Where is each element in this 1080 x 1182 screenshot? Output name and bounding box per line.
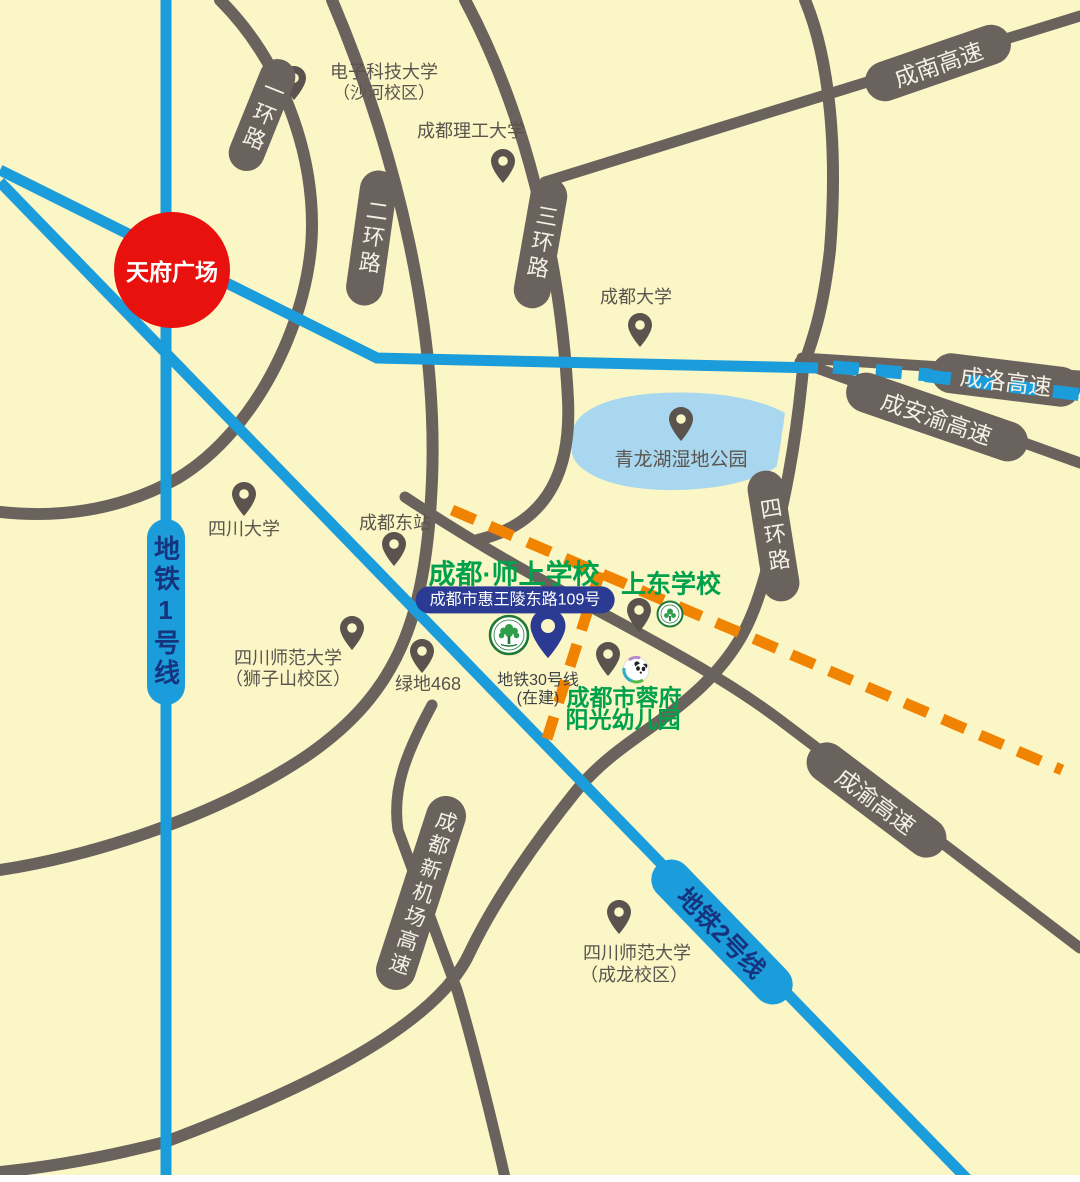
pin-featured-school [531,609,566,659]
poi-cdut-name: 成都理工大学 [417,122,525,140]
poi-sicnu-chenglong-name: 四川师范大学 [583,944,691,962]
pin-sichuan-university [232,482,256,516]
tianfu-square-label: 天府广场 [126,253,218,287]
road-ring-2 [0,0,433,870]
ring2-road-label: 二环路 [350,197,393,279]
qinglong-lake-label: 青龙湖湿地公园 [614,451,747,470]
metro-line1-pill: 地铁1号线 [147,519,185,705]
shangdong-logo-icon [658,602,683,627]
pin-sicnu-shizishan [340,616,364,650]
chengluo-expressway-label: 成洛高速 [958,358,1053,403]
poi-sicnu-branch: （狮子山校区） [225,670,351,688]
poi-sicnu-chenglong-branch: （成龙校区） [580,966,688,984]
metro-line30-status: (在建) [517,684,560,708]
pin-chengdu-east-station [382,532,406,566]
pin-sicnu-chenglong [607,900,631,934]
shangdong-school-name: 上东学校 [621,573,721,598]
map-canvas: 一环路 二环路 三环路 四环路 成南高速 成洛高速 成安渝高速 成渝高速 成都新… [0,0,1080,1182]
poi-uestc-name: 电子科技大学 [330,63,438,81]
featured-school-name: 成都·师上学校 [429,562,600,589]
poi-greenland-468-name: 绿地468 [395,675,461,693]
metro-line1-label: 地铁1号线 [148,535,185,689]
pin-cdut [491,149,515,183]
poi-sicnu-name: 四川师范大学 [234,649,342,667]
school-logo-icon [490,616,528,654]
pin-chengdu-university [628,313,652,347]
bottom-border [0,1175,1080,1182]
poi-chengdu-university-name: 成都大学 [600,288,672,306]
pin-greenland-468 [410,639,434,673]
panda-logo-icon [623,657,649,683]
poi-sichuan-university-name: 四川大学 [208,520,280,538]
poi-chengdu-east-station-name: 成都东站 [359,514,431,532]
poi-uestc-branch: （沙河校区） [333,85,435,102]
pin-kindergarten [596,642,620,676]
kindergarten-name-line2: 阳光幼儿园 [566,709,681,732]
featured-school-address-badge: 成都市惠王陵东路109号 [416,586,615,613]
